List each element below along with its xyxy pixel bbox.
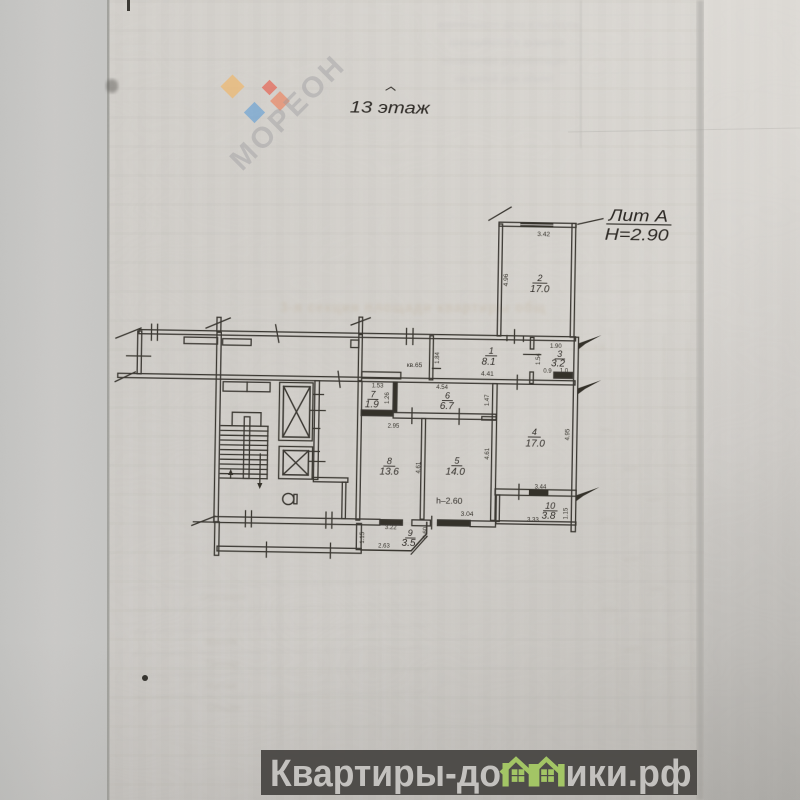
svg-text:4.95: 4.95: [565, 428, 571, 440]
svg-text:3.33: 3.33: [527, 517, 539, 523]
svg-text:1.15: 1.15: [360, 531, 366, 543]
svg-text:1.9: 1.9: [365, 399, 380, 410]
svg-text:4.96: 4.96: [503, 273, 510, 286]
svg-text:1.47: 1.47: [485, 394, 491, 406]
svg-text:Основная: Основная: [200, 592, 246, 603]
svg-text:составляется и хранится: составляется и хранится: [449, 38, 564, 49]
svg-text:1.15: 1.15: [563, 507, 569, 519]
svg-text:14.0: 14.0: [445, 467, 465, 478]
svg-text:13 этаж: 13 этаж: [350, 97, 432, 117]
svg-text:0.9: 0.9: [543, 369, 552, 375]
svg-text:1.84: 1.84: [435, 351, 441, 363]
svg-text:4.41: 4.41: [481, 371, 494, 378]
svg-text:2.95: 2.95: [388, 424, 400, 430]
svg-text:Квартиры-до: Квартиры-до: [270, 753, 501, 795]
svg-text:инвентарного дела и паспорта: инвентарного дела и паспорта: [437, 20, 579, 31]
svg-text:Жилая: Жилая: [205, 681, 237, 692]
svg-text:кв.65: кв.65: [407, 362, 423, 369]
svg-text:8: 8: [387, 456, 392, 466]
svg-text:Жилая: Жилая: [205, 637, 237, 648]
svg-text:8.1: 8.1: [482, 357, 496, 368]
svg-text:17.0: 17.0: [530, 284, 550, 295]
svg-text:3.22: 3.22: [385, 525, 397, 531]
svg-text:4.61: 4.61: [416, 461, 422, 473]
svg-text:6.7: 6.7: [440, 401, 455, 412]
svg-text:17.0: 17.0: [525, 438, 545, 449]
svg-text:6: 6: [445, 391, 450, 401]
svg-text:ики.рф: ики.рф: [566, 753, 692, 795]
svg-text:3.42: 3.42: [537, 231, 550, 238]
svg-text:1.54: 1.54: [536, 353, 542, 365]
svg-text:h–2.60: h–2.60: [436, 495, 463, 505]
svg-text:1.26: 1.26: [385, 392, 391, 404]
svg-text:3.44: 3.44: [535, 485, 547, 491]
svg-text:2: 2: [536, 273, 542, 283]
svg-text:9: 9: [408, 528, 413, 538]
svg-text:3-я секция площади квартиры: 3-я секция площади квартиры общ: [280, 300, 546, 315]
svg-text:2.63: 2.63: [378, 543, 390, 549]
svg-text:техническая документация: техническая документация: [441, 56, 567, 67]
svg-text:0.60: 0.60: [423, 526, 429, 538]
svg-text:Тёплая: Тёплая: [205, 659, 239, 670]
svg-text:Лит А: Лит А: [608, 206, 668, 226]
svg-text:3.5: 3.5: [401, 538, 416, 549]
svg-text:1: 1: [489, 346, 494, 356]
svg-text:на жилой дом объект: на жилой дом объект: [455, 73, 554, 85]
svg-text:10: 10: [545, 501, 555, 511]
svg-text:3.8: 3.8: [541, 511, 556, 522]
svg-text:4: 4: [532, 427, 537, 437]
svg-text:3.04: 3.04: [461, 511, 474, 518]
svg-text:Н=2.90: Н=2.90: [605, 225, 670, 245]
svg-text:Общая: Общая: [207, 702, 240, 714]
svg-text:4.61: 4.61: [485, 447, 491, 459]
svg-text:13.6: 13.6: [379, 466, 399, 477]
svg-text:1.0: 1.0: [560, 368, 569, 374]
